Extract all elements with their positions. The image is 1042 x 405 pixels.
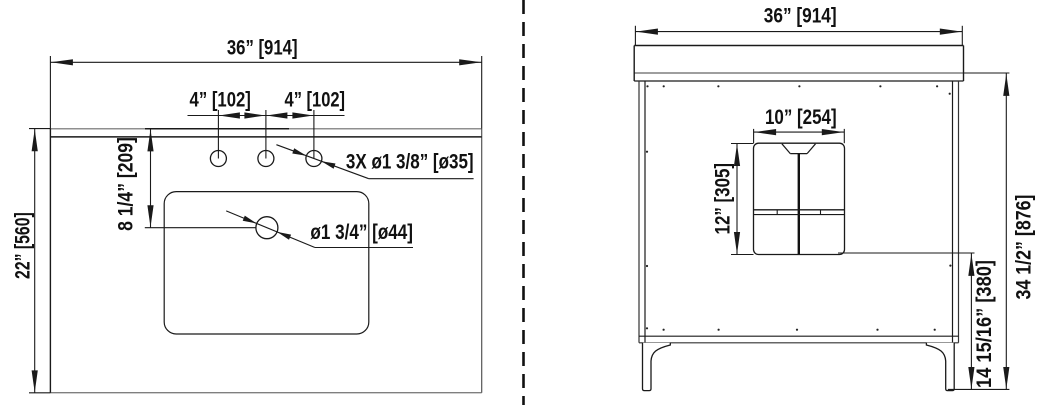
svg-text:14 15/16” [380]: 14 15/16” [380] — [973, 260, 996, 388]
svg-text:12” [305]: 12” [305] — [712, 163, 735, 235]
svg-text:36” [914]: 36” [914] — [227, 37, 298, 60]
svg-text:8 1/4” [209]: 8 1/4” [209] — [115, 137, 138, 231]
svg-text:3X ø1 3/8” [ø35]: 3X ø1 3/8” [ø35] — [346, 151, 474, 174]
svg-text:22” [560]: 22” [560] — [12, 212, 35, 279]
svg-text:ø1 3/4” [ø44]: ø1 3/4” [ø44] — [310, 221, 413, 244]
svg-text:4” [102]: 4” [102] — [285, 89, 346, 112]
svg-text:10” [254]: 10” [254] — [765, 106, 837, 129]
svg-text:34 1/2” [876]: 34 1/2” [876] — [1013, 195, 1036, 300]
svg-text:4” [102]: 4” [102] — [190, 89, 251, 112]
svg-text:36” [914]: 36” [914] — [764, 4, 837, 27]
